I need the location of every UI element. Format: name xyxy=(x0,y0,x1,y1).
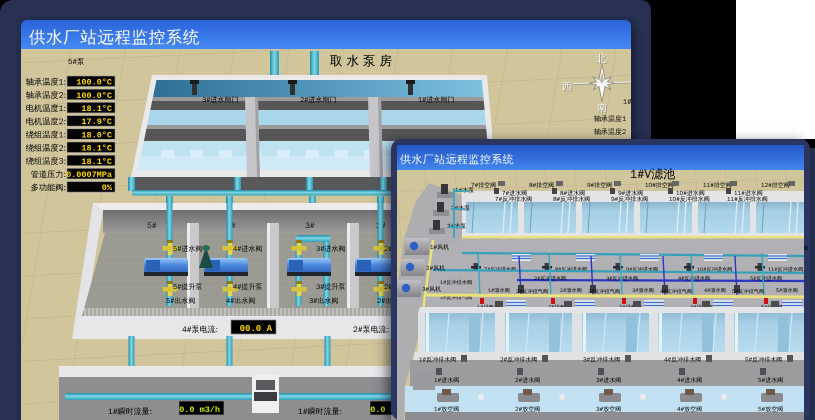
svg-text:17.9°C: 17.9°C xyxy=(81,117,112,127)
svg-text:0%: 0% xyxy=(102,183,113,193)
svg-text:00.0 A: 00.0 A xyxy=(240,324,273,334)
svg-text:18.0°C: 18.0°C xyxy=(81,130,112,140)
svg-text:100.0°C: 100.0°C xyxy=(76,78,112,88)
svg-text:0.0007MPa: 0.0007MPa xyxy=(66,170,112,180)
svg-text:18.1°C: 18.1°C xyxy=(81,157,112,167)
svg-text:18.1°C: 18.1°C xyxy=(81,144,112,154)
svg-text:0.0 m3/h: 0.0 m3/h xyxy=(179,405,220,415)
svg-text:18.1°C: 18.1°C xyxy=(81,104,112,114)
svg-text:100.0°C: 100.0°C xyxy=(76,91,112,101)
